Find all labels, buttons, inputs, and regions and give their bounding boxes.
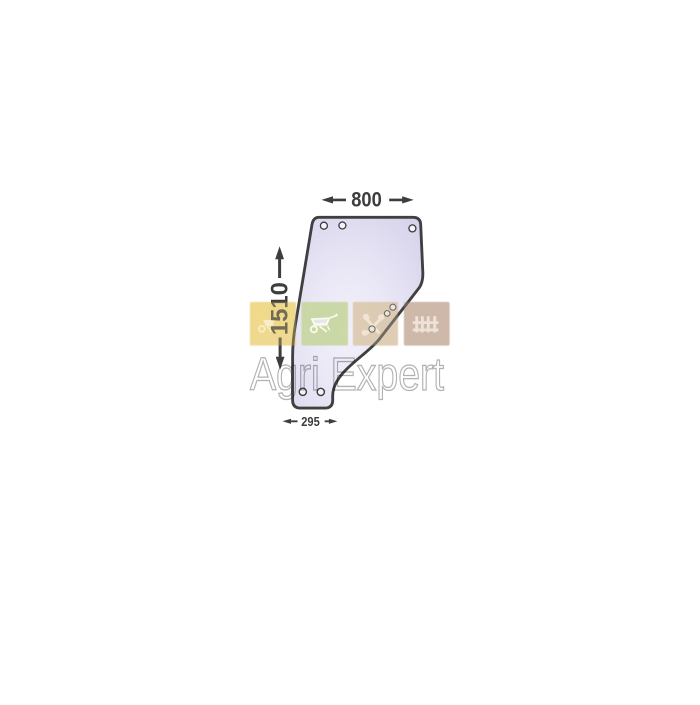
svg-text:800: 800 (351, 189, 382, 212)
svg-text:295: 295 (301, 414, 320, 429)
svg-text:Agri Expert: Agri Expert (250, 348, 444, 400)
